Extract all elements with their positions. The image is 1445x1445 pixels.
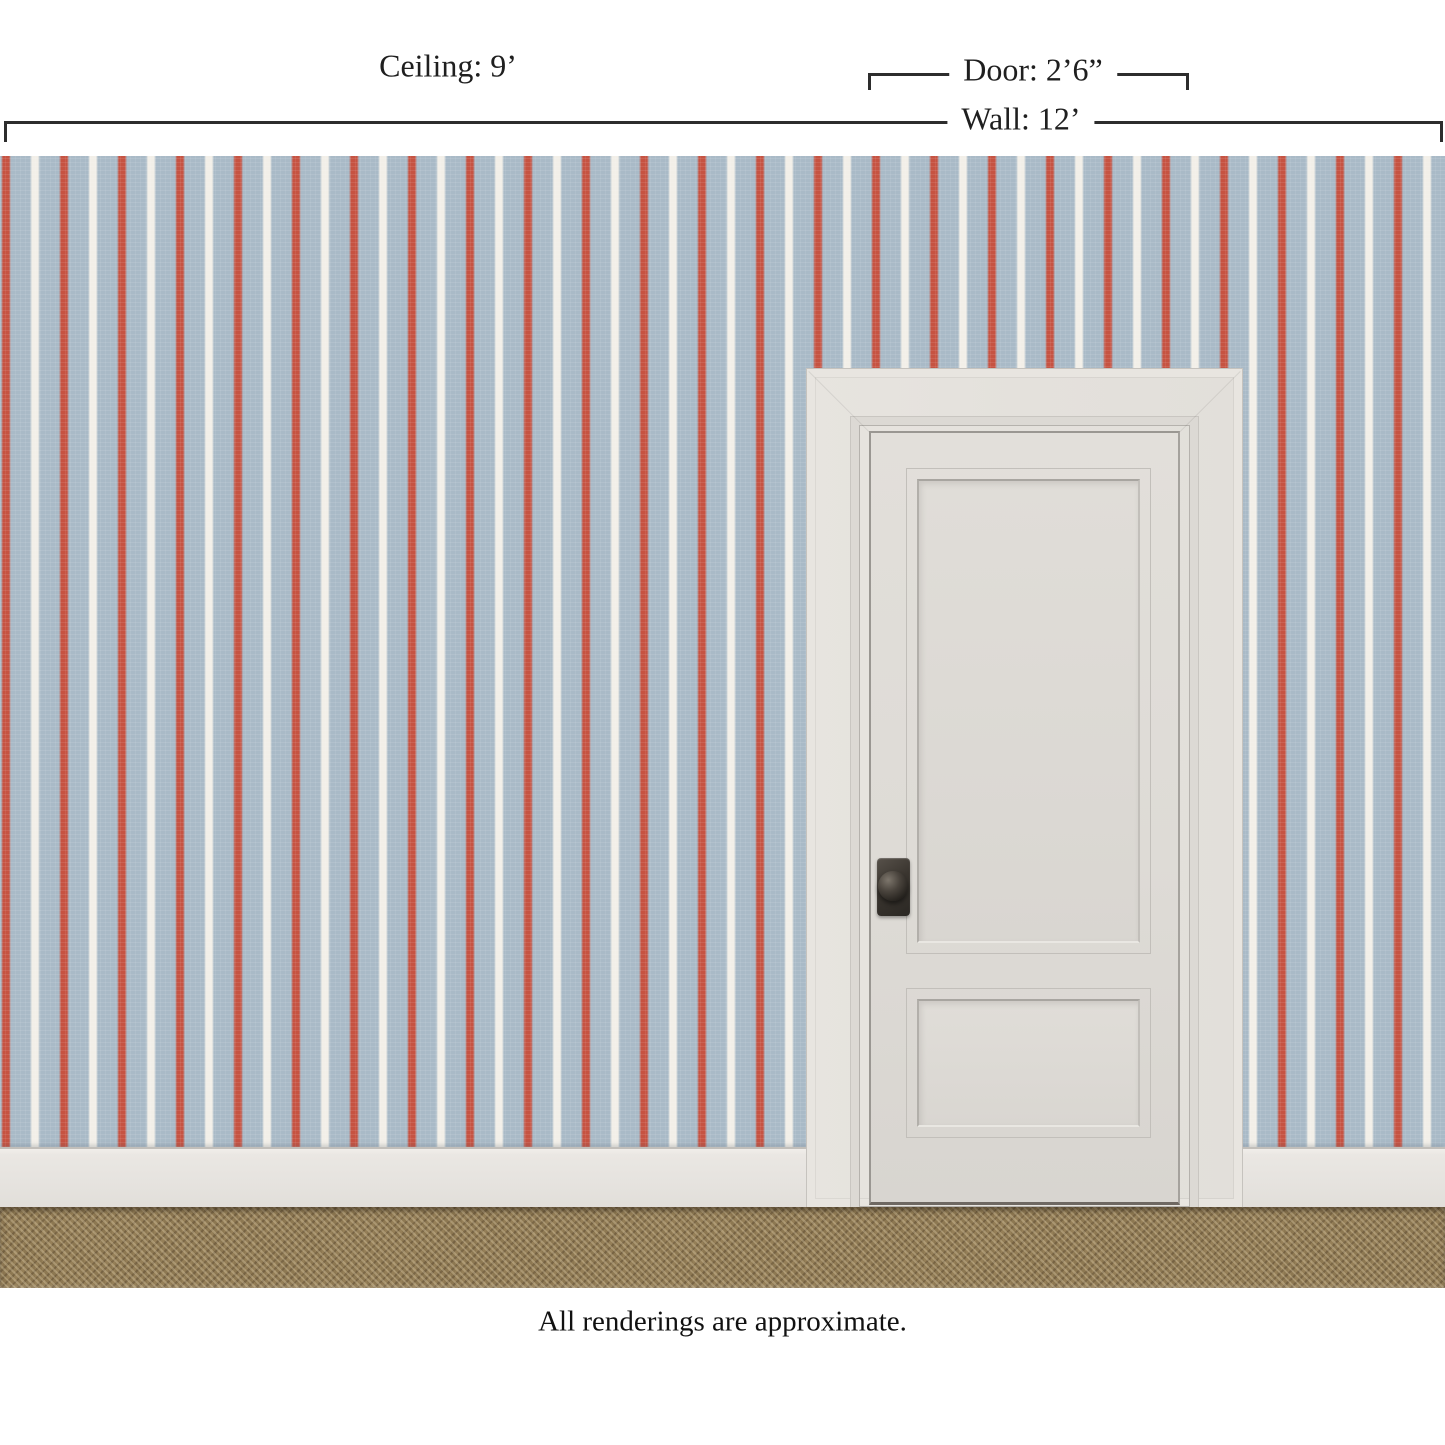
ceiling-dimension-label: Ceiling: 9’ (379, 48, 517, 83)
door-panel-lower (906, 988, 1151, 1138)
door-panel-upper-face (917, 479, 1140, 943)
door-frame (806, 368, 1243, 1207)
door-knob (878, 871, 908, 901)
wallpaper-room-preview: Ceiling: 9’ Door: 2’6” Wall: 12’ All ren… (0, 0, 1445, 1445)
door-dimension-label: Door: 2’6” (949, 52, 1117, 87)
wall-dimension-label: Wall: 12’ (947, 101, 1094, 136)
wall-dimension-line (4, 121, 1443, 142)
door-panel-lower-face (917, 999, 1140, 1127)
door-panel-upper (906, 468, 1151, 954)
casing-miter-joint-left (808, 371, 871, 434)
casing-miter-joint-right (1178, 371, 1241, 434)
door-slab (869, 431, 1180, 1205)
carpet-floor (0, 1207, 1445, 1288)
disclaimer-text: All renderings are approximate. (538, 1306, 907, 1339)
